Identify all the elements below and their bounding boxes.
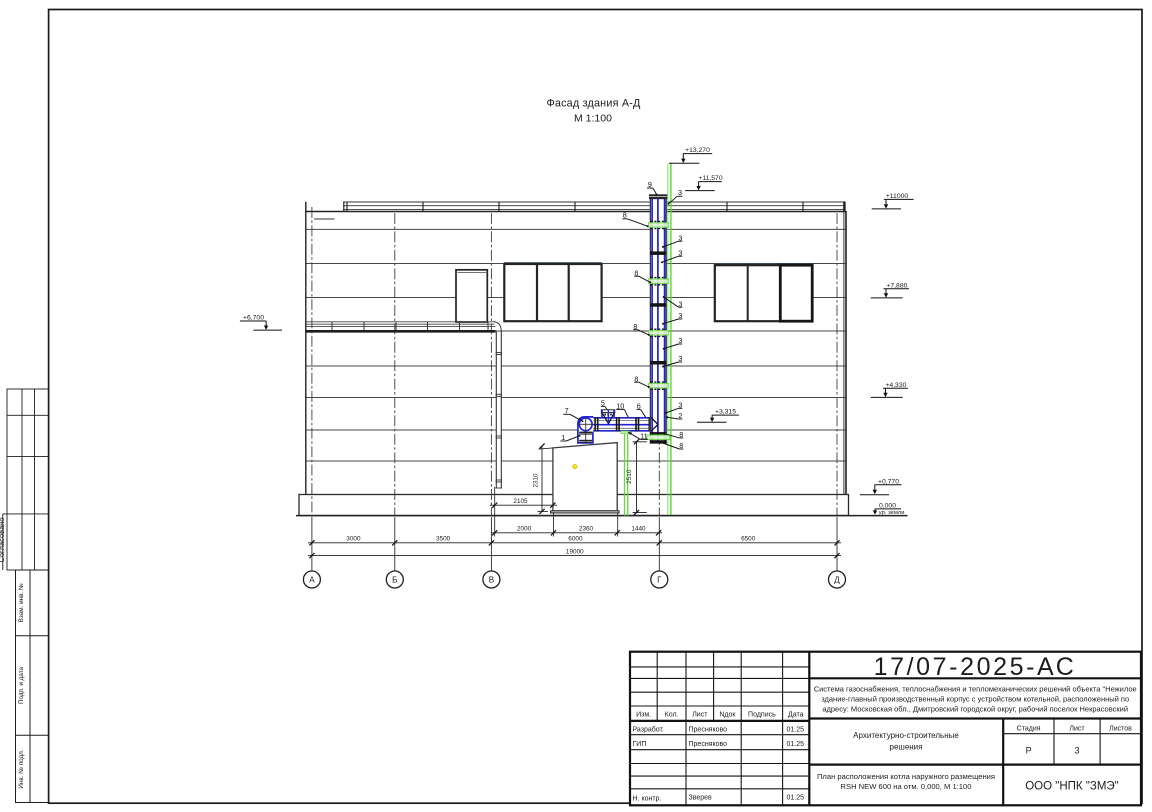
svg-text:1: 1 bbox=[561, 433, 565, 442]
svg-text:Д: Д bbox=[834, 576, 840, 585]
svg-text:+11,570: +11,570 bbox=[698, 175, 722, 182]
svg-text:ур. земли: ур. земли bbox=[879, 510, 905, 516]
svg-text:3: 3 bbox=[678, 188, 682, 197]
svg-text:2510: 2510 bbox=[626, 469, 633, 484]
svg-text:0,000: 0,000 bbox=[879, 502, 896, 509]
svg-text:Стадия: Стадия bbox=[1017, 726, 1041, 733]
svg-text:2: 2 bbox=[678, 411, 682, 420]
svg-text:3: 3 bbox=[678, 354, 682, 363]
svg-text:9: 9 bbox=[648, 180, 652, 189]
svg-text:здание-главный производственны: здание-главный производственный корпус с… bbox=[821, 695, 1129, 704]
svg-text:8: 8 bbox=[679, 441, 683, 450]
svg-text:План расположения котла наружн: План расположения котла наружного размещ… bbox=[817, 772, 995, 781]
svg-text:Подп. и дата: Подп. и дата bbox=[18, 666, 25, 704]
svg-text:Nдок: Nдок bbox=[719, 712, 736, 719]
svg-text:3: 3 bbox=[678, 336, 682, 345]
svg-text:Н. контр.: Н. контр. bbox=[633, 795, 662, 802]
svg-text:RSH NEW 600 на отм. 0,000, М: RSH NEW 600 на отм. 0,000, М 1:100 bbox=[841, 782, 972, 791]
svg-text:+4,330: +4,330 bbox=[885, 382, 906, 389]
svg-text:6500: 6500 bbox=[741, 536, 756, 543]
svg-text:3: 3 bbox=[678, 400, 682, 409]
svg-text:17/07-2025-АС: 17/07-2025-АС bbox=[874, 653, 1077, 681]
svg-text:10: 10 bbox=[616, 401, 624, 410]
svg-text:8: 8 bbox=[679, 430, 683, 439]
svg-text:3000: 3000 bbox=[346, 536, 361, 543]
svg-text:ООО "НПК "ЗМЭ": ООО "НПК "ЗМЭ" bbox=[1025, 781, 1119, 793]
svg-text:+13,270: +13,270 bbox=[685, 147, 710, 154]
svg-text:Пресняково: Пресняково bbox=[689, 726, 728, 733]
svg-text:Изм.: Изм. bbox=[636, 712, 651, 719]
svg-text:Кол.: Кол. bbox=[665, 712, 679, 719]
svg-text:3: 3 bbox=[678, 233, 682, 242]
svg-text:5: 5 bbox=[601, 398, 605, 407]
svg-text:1440: 1440 bbox=[631, 525, 646, 532]
svg-text:+6,700: +6,700 bbox=[243, 315, 264, 322]
svg-text:3: 3 bbox=[1074, 746, 1079, 756]
svg-text:2105: 2105 bbox=[513, 498, 528, 505]
svg-text:Лист: Лист bbox=[692, 712, 708, 719]
svg-text:Подпись: Подпись bbox=[748, 712, 776, 719]
svg-text:2000: 2000 bbox=[517, 525, 532, 532]
svg-text:Листов: Листов bbox=[1109, 726, 1132, 733]
svg-text:+3,315: +3,315 bbox=[715, 409, 736, 416]
svg-text:8: 8 bbox=[634, 374, 638, 383]
svg-text:2360: 2360 bbox=[579, 525, 594, 532]
svg-text:Фасад здания А-Д: Фасад здания А-Д bbox=[546, 98, 641, 110]
svg-text:01.25: 01.25 bbox=[787, 726, 805, 733]
svg-text:11: 11 bbox=[640, 432, 647, 441]
svg-text:Взам. инв. №: Взам. инв. № bbox=[18, 583, 25, 622]
svg-text:01.25: 01.25 bbox=[787, 795, 805, 802]
svg-text:6000: 6000 bbox=[568, 536, 583, 543]
svg-text:7: 7 bbox=[565, 406, 569, 415]
svg-text:8: 8 bbox=[634, 268, 638, 277]
svg-text:Зверев: Зверев bbox=[689, 795, 713, 802]
svg-text:01.25: 01.25 bbox=[787, 741, 805, 748]
svg-text:Б: Б bbox=[392, 576, 397, 585]
svg-text:Р: Р bbox=[1026, 746, 1032, 756]
svg-text:3500: 3500 bbox=[436, 536, 451, 543]
svg-text:8: 8 bbox=[623, 211, 627, 220]
svg-text:Лист: Лист bbox=[1069, 726, 1085, 733]
svg-text:3: 3 bbox=[678, 311, 682, 320]
svg-text:Система газоснабжения, теплосн: Система газоснабжения, теплоснабжения и … bbox=[814, 685, 1137, 694]
svg-text:6: 6 bbox=[637, 401, 641, 410]
svg-text:+11000: +11000 bbox=[886, 193, 909, 200]
svg-text:+7,880: +7,880 bbox=[886, 282, 907, 289]
svg-text:Согласовано: Согласовано bbox=[0, 517, 6, 562]
svg-text:3: 3 bbox=[678, 299, 682, 308]
svg-text:+0,770: +0,770 bbox=[878, 478, 899, 485]
svg-text:Разработ.: Разработ. bbox=[633, 725, 664, 733]
svg-text:Дата: Дата bbox=[788, 712, 804, 719]
svg-text:А: А bbox=[309, 576, 315, 585]
svg-text:Г: Г bbox=[657, 576, 662, 585]
svg-text:решения: решения bbox=[890, 742, 923, 751]
svg-text:адресу: Московская обл., Дмитр: адресу: Московская обл., Дмитровский гор… bbox=[822, 705, 1128, 714]
svg-text:3: 3 bbox=[678, 248, 682, 257]
svg-text:В: В bbox=[489, 576, 494, 585]
svg-text:19000: 19000 bbox=[566, 549, 584, 556]
svg-text:Пресняково: Пресняково bbox=[689, 741, 728, 748]
svg-text:Архитектурно-строительные: Архитектурно-строительные bbox=[853, 731, 959, 740]
svg-text:ГИП: ГИП bbox=[633, 741, 647, 748]
svg-text:2310: 2310 bbox=[533, 473, 540, 488]
svg-text:8: 8 bbox=[633, 322, 637, 331]
svg-text:Инв. № подл.: Инв. № подл. bbox=[18, 749, 25, 788]
svg-text:М 1:100: М 1:100 bbox=[574, 113, 612, 125]
